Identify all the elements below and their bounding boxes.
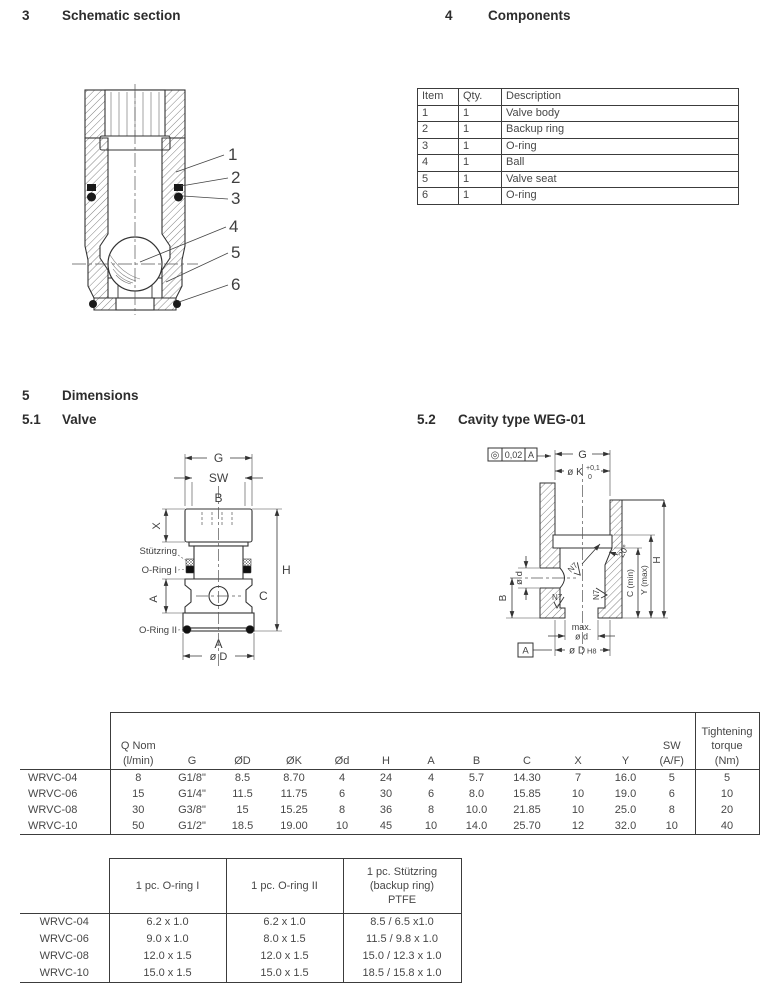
stutzring-label: Stützring (140, 546, 178, 557)
cell: 15.85 (500, 786, 554, 802)
cell: G1/4" (166, 786, 218, 802)
cell: 12.0 x 1.5 (109, 948, 226, 965)
col-header-item: Item (418, 89, 459, 106)
col-header-d: Ød (321, 713, 363, 770)
cell: 5.7 (453, 770, 500, 787)
section-5-1-title: Valve (62, 412, 97, 427)
table-row: WRVC-08 12.0 x 1.5 12.0 x 1.5 15.0 / 12.… (20, 948, 461, 965)
callout-2: 2 (231, 168, 240, 187)
dim-ok-label: ø K (567, 467, 583, 478)
section-5-title: Dimensions (62, 388, 139, 403)
model-cell: WRVC-04 (20, 914, 109, 932)
cell: 1 (459, 105, 502, 122)
table-row: 41Ball (418, 155, 739, 172)
concentricity-icon: ◎ (491, 450, 500, 461)
cell: 14.30 (500, 770, 554, 787)
dimension-lines (512, 454, 664, 650)
cell: 11.75 (267, 786, 321, 802)
cell: 10 (554, 802, 602, 818)
table-row: 51Valve seat (418, 171, 739, 188)
cell: 10 (695, 786, 759, 802)
dim-od-label: ø D (210, 651, 228, 663)
cell: 30 (363, 786, 409, 802)
cell: 11.5 (218, 786, 267, 802)
cell: 10 (321, 818, 363, 835)
dim-sw-label: SW (209, 471, 229, 485)
cell: 1 (459, 155, 502, 172)
table-row: WRVC-10 15.0 x 1.5 15.0 x 1.5 18.5 / 15.… (20, 965, 461, 983)
cell: 1 (459, 138, 502, 155)
cell: 6.2 x 1.0 (109, 914, 226, 932)
cell: 8.70 (267, 770, 321, 787)
table-row: WRVC-08 30 G3/8" 15 15.25 8 36 8 10.0 21… (20, 802, 759, 818)
section-5-number: 5 (22, 388, 62, 403)
cell: 6 (649, 786, 695, 802)
table-row: WRVC-06 15 G1/4" 11.5 11.75 6 30 6 8.0 1… (20, 786, 759, 802)
dimensions-header-row: Q Nom (l/min) G ØD ØK Ød H A B C X Y SW … (20, 713, 759, 770)
cell: Valve body (502, 105, 739, 122)
cell: 4 (321, 770, 363, 787)
col-header-b: B (453, 713, 500, 770)
col-header-sw: SW (A/F) (649, 713, 695, 770)
table-row: WRVC-06 9.0 x 1.0 8.0 x 1.5 11.5 / 9.8 x… (20, 931, 461, 948)
section-5-2-heading: 5.2Cavity type WEG-01 (417, 412, 586, 427)
dim-odh8-label: ø D (569, 646, 585, 657)
valve-dimension-drawing: G SW B X Stützring O-Ring I A C H O-Ring… (122, 442, 307, 677)
cell: 19.00 (267, 818, 321, 835)
section-5-1-heading: 5.1Valve (22, 412, 97, 427)
cell: G1/2" (166, 818, 218, 835)
model-cell: WRVC-06 (20, 931, 109, 948)
cell: 15 (110, 786, 166, 802)
section-4-heading: 4Components (445, 8, 571, 23)
datasheet-page: 3Schematic section 4Components 5Dimensio… (0, 0, 775, 995)
cell: 7 (554, 770, 602, 787)
table-row: 21Backup ring (418, 122, 739, 139)
dim-h8-suffix: H8 (587, 647, 597, 656)
cell: Valve seat (502, 171, 739, 188)
max-od-line2: ø d (575, 632, 588, 642)
cell: Ball (502, 155, 739, 172)
cell: 25.70 (500, 818, 554, 835)
cell: 8.5 (218, 770, 267, 787)
cell: 6 (418, 188, 459, 205)
cell: 15.25 (267, 802, 321, 818)
oring1-label: O-Ring I (142, 565, 177, 576)
section-4-title: Components (488, 8, 571, 23)
callout-4: 4 (229, 217, 238, 236)
cell: 10 (554, 786, 602, 802)
col-header-stutzring: 1 pc. Stützring (backup ring) PTFE (343, 859, 461, 914)
cell: 4 (418, 155, 459, 172)
cell: 12 (554, 818, 602, 835)
dim-c-label: C (259, 589, 268, 603)
section-5-2-title: Cavity type WEG-01 (458, 412, 586, 427)
cell: 50 (110, 818, 166, 835)
components-header-row: Item Qty. Description (418, 89, 739, 106)
table-row: 11Valve body (418, 105, 739, 122)
callout-numbers: 1 2 3 4 5 6 (228, 145, 240, 294)
cell: 9.0 x 1.0 (109, 931, 226, 948)
cell: 8.0 x 1.5 (226, 931, 343, 948)
cell: 45 (363, 818, 409, 835)
cell: 21.85 (500, 802, 554, 818)
cell: 8 (649, 802, 695, 818)
callout-1: 1 (228, 145, 237, 164)
dim-h-label: H (652, 556, 663, 563)
table-row: WRVC-10 50 G1/2" 18.5 19.00 10 45 10 14.… (20, 818, 759, 835)
model-cell: WRVC-10 (20, 818, 110, 835)
cavity-dimension-drawing: ◎ 0,02 A (468, 440, 708, 675)
cell: 10 (649, 818, 695, 835)
section-3-number: 3 (22, 8, 62, 23)
dim-c-min-label: C (min) (625, 569, 635, 597)
model-cell: WRVC-08 (20, 948, 109, 965)
datum-flag: A (518, 643, 552, 657)
callout-6: 6 (231, 275, 240, 294)
dimensions-table: Q Nom (l/min) G ØD ØK Ød H A B C X Y SW … (20, 712, 760, 835)
tolerance-datum: A (528, 450, 534, 460)
callout-3: 3 (231, 189, 240, 208)
cell: 30 (110, 802, 166, 818)
datum-a-label: A (522, 646, 529, 657)
col-header-torque: Tightening torque (Nm) (695, 713, 759, 770)
dim-g-label: G (214, 451, 223, 465)
cell: 1 (459, 171, 502, 188)
dim-g-label: G (578, 449, 587, 461)
cell: 18.5 / 15.8 x 1.0 (343, 965, 461, 983)
table-row: WRVC-04 6.2 x 1.0 6.2 x 1.0 8.5 / 6.5 x1… (20, 914, 461, 932)
cell: G1/8" (166, 770, 218, 787)
dim-od-port-label: ø d (514, 571, 525, 585)
cell: 6 (409, 786, 453, 802)
col-header-ok: ØK (267, 713, 321, 770)
col-header-oring1: 1 pc. O-ring I (109, 859, 226, 914)
dim-b-label: B (214, 491, 222, 505)
cell: 15 (218, 802, 267, 818)
cell: 15.0 x 1.5 (109, 965, 226, 983)
section-4-number: 4 (445, 8, 488, 23)
cell: 36 (363, 802, 409, 818)
col-header-h: H (363, 713, 409, 770)
n7-mark-1: N7 (566, 560, 580, 574)
cell: 32.0 (602, 818, 649, 835)
cell: 8 (409, 802, 453, 818)
cell: Backup ring (502, 122, 739, 139)
components-table: Item Qty. Description 11Valve body 21Bac… (417, 88, 739, 205)
cell: 19.0 (602, 786, 649, 802)
cell: 8.5 / 6.5 x1.0 (343, 914, 461, 932)
cell: 12.0 x 1.5 (226, 948, 343, 965)
cell: 1 (418, 105, 459, 122)
col-header-oring2: 1 pc. O-ring II (226, 859, 343, 914)
max-od-line1: max. (572, 622, 592, 632)
col-header-x: X (554, 713, 602, 770)
section-3-heading: 3Schematic section (22, 8, 181, 23)
dim-ok-lower-tol: 0 (588, 474, 592, 481)
cell: O-ring (502, 188, 739, 205)
blank-header (20, 713, 110, 770)
dim-y-max-label: Y (max) (639, 565, 649, 595)
cell: 6.2 x 1.0 (226, 914, 343, 932)
tolerance-frame: ◎ 0,02 A (488, 448, 551, 461)
section-5-heading: 5Dimensions (22, 388, 139, 403)
section-5-2-number: 5.2 (417, 412, 458, 427)
dim-h-label: H (282, 563, 291, 577)
cell: G3/8" (166, 802, 218, 818)
cell: 15.0 / 12.3 x 1.0 (343, 948, 461, 965)
model-cell: WRVC-10 (20, 965, 109, 983)
col-header-c: C (500, 713, 554, 770)
cell: 24 (363, 770, 409, 787)
col-header-qnom: Q Nom (l/min) (110, 713, 166, 770)
seals-header-row: 1 pc. O-ring I 1 pc. O-ring II 1 pc. Stü… (20, 859, 461, 914)
cell: 1 (459, 188, 502, 205)
col-header-qty: Qty. (459, 89, 502, 106)
table-row: WRVC-04 8 G1/8" 8.5 8.70 4 24 4 5.7 14.3… (20, 770, 759, 787)
model-cell: WRVC-04 (20, 770, 110, 787)
cell: 15.0 x 1.5 (226, 965, 343, 983)
blank-header (20, 859, 109, 914)
cell: 10.0 (453, 802, 500, 818)
cell: 10 (409, 818, 453, 835)
section-5-1-number: 5.1 (22, 412, 62, 427)
cell: 6 (321, 786, 363, 802)
cell: 8 (321, 802, 363, 818)
model-cell: WRVC-08 (20, 802, 110, 818)
callout-5: 5 (231, 243, 240, 262)
cell: 40 (695, 818, 759, 835)
valve-cross-section-drawing: 1 2 3 4 5 6 (60, 82, 320, 322)
cell: 8.0 (453, 786, 500, 802)
cell: 11.5 / 9.8 x 1.0 (343, 931, 461, 948)
table-row: 61O-ring (418, 188, 739, 205)
cell: 1 (459, 122, 502, 139)
cell: 3 (418, 138, 459, 155)
oring2-label: O-Ring II (139, 625, 177, 636)
cell: 16.0 (602, 770, 649, 787)
cell: 8 (110, 770, 166, 787)
model-cell: WRVC-06 (20, 786, 110, 802)
table-row: 31O-ring (418, 138, 739, 155)
col-header-y: Y (602, 713, 649, 770)
dim-b-label: B (498, 594, 509, 601)
cell: 4 (409, 770, 453, 787)
col-header-g: G (166, 713, 218, 770)
cell: 20 (695, 802, 759, 818)
section-3-title: Schematic section (62, 8, 181, 23)
col-header-od: ØD (218, 713, 267, 770)
cell: 14.0 (453, 818, 500, 835)
dim-a-bottom-label: A (214, 637, 222, 651)
col-header-a: A (409, 713, 453, 770)
cell: 5 (649, 770, 695, 787)
tolerance-value: 0,02 (505, 450, 523, 460)
cell: O-ring (502, 138, 739, 155)
dim-x-label: X (151, 522, 163, 530)
cell: 18.5 (218, 818, 267, 835)
cell: 25.0 (602, 802, 649, 818)
cell: 2 (418, 122, 459, 139)
cell: 5 (695, 770, 759, 787)
col-header-description: Description (502, 89, 739, 106)
cell: 5 (418, 171, 459, 188)
seals-table: 1 pc. O-ring I 1 pc. O-ring II 1 pc. Stü… (20, 858, 462, 983)
dim-a-side-label: A (148, 595, 160, 603)
dim-ok-upper-tol: +0,1 (586, 465, 600, 472)
